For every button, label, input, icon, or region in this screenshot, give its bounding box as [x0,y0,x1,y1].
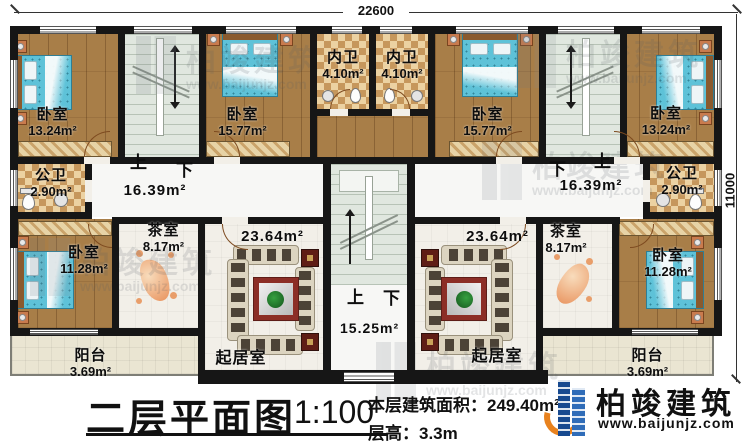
room-area: 11.28m² [624,265,712,280]
watermark-brand: 柏竣建筑 [186,36,322,80]
room-name: 卧室 [195,107,290,124]
bed-headboard [17,252,24,308]
floor-plan-page: 柏竣建筑 www.baijunjz.com 柏竣建筑 www.baijunjz.… [0,0,750,447]
room-area: 16.39m² [556,178,626,195]
room-area: 15.25m² [340,321,398,337]
wall [650,212,714,219]
room-label-inner-bath-left: 内卫 4.10m² [316,50,370,81]
pillow [493,43,511,55]
room-name: 阳台 [48,348,133,365]
room-label-bedroom-top-right: 卧室 13.24m² [622,106,710,137]
window [558,26,614,34]
room-area: 23.64m² [215,229,330,246]
room-area: 4.10m² [374,67,430,82]
window [714,60,722,108]
room-name: 公卫 [16,168,86,185]
plant [456,291,473,308]
door-opening [496,157,522,164]
room-area: 11.28m² [40,262,128,277]
bed [462,33,518,97]
room-label-hall-right: 16.39m² [556,178,626,195]
room-area: 3.69m² [48,365,133,380]
room-label-balcony-left: 阳台 3.69m² [48,348,133,379]
door-opening [222,217,248,224]
room-name: 内卫 [374,50,430,67]
window [632,329,698,335]
room-area: 13.24m² [10,124,95,139]
bed-headboard [463,34,517,40]
door-opening [500,217,526,224]
room-name: 卧室 [10,107,95,124]
door-opening [84,157,110,164]
room-area: 13.24m² [622,123,710,138]
room-area: 23.64m² [440,229,555,246]
room-area: 8.17m² [126,240,201,255]
room-area: 2.90m² [648,183,716,198]
room-label-public-bath-left: 公卫 2.90m² [16,168,86,199]
bed [14,55,72,110]
room-label-living-right: 起居室 [452,348,542,366]
wall [612,224,619,336]
wall [118,26,125,164]
arrow-head [345,204,355,216]
floor-height-value: 3.3m [419,424,458,443]
room-area: 15.77m² [440,124,535,139]
floor-height-label: 层高： [368,424,419,443]
wall [10,26,722,34]
stair-rail [365,176,373,260]
room-label-hall-left: 16.39m² [118,183,192,200]
stair-up-label: 上 [594,147,611,172]
window [134,26,192,34]
window [332,26,362,34]
wall [539,26,546,164]
watermark-url: www.baijunjz.com [80,278,201,294]
watermark-brand: 柏竣建筑 [566,30,702,74]
window [714,248,722,300]
room-label-bedroom-top-left-2: 卧室 15.77m² [195,107,290,138]
door-opening [214,157,240,164]
stair-up-label: 上 [347,283,364,308]
room-label-living-right-area: 23.64m² [440,229,555,246]
room-area: 4.10m² [316,67,370,82]
window [30,329,98,335]
stair-down-label: 下 [549,155,566,180]
sofa [491,259,513,341]
dimension-top-value: 22600 [343,3,409,18]
room-name: 内卫 [316,50,370,67]
stair-down-label: 下 [176,156,193,181]
room-label-bedroom-top-left: 卧室 13.24m² [10,107,95,138]
room-label-public-bath-right: 公卫 2.90m² [648,166,716,197]
window [10,60,18,108]
room-name: 卧室 [624,248,712,265]
pillow [470,43,488,55]
room-label-balcony-right: 阳台 3.69m² [605,348,690,379]
sofa-set [417,245,513,357]
wall [310,26,317,164]
floor-strip-center [317,109,428,164]
wall [407,157,415,370]
brand-url: www.baijunjz.com [598,415,735,431]
window [344,372,394,382]
pillow [681,281,694,300]
room-label-bedroom-bottom-right: 卧室 11.28m² [624,248,712,279]
room-label-bedroom-bottom-left: 卧室 11.28m² [40,245,128,276]
blanket [45,56,71,109]
tea-decor-dot [586,296,592,302]
wall [112,224,119,336]
logo-tower [572,388,585,436]
side-table [301,249,319,267]
pillow [24,85,37,104]
brand-logo-icon [544,378,590,442]
dimension-right-value: 11000 [723,161,738,221]
wall [323,157,331,370]
door-opening [614,157,640,164]
room-name: 卧室 [40,245,128,262]
floor-height-line: 层高：3.3m [368,419,458,444]
plan-scale: 1:100 [294,394,374,431]
room-area: 3.69m² [605,365,690,380]
logo-tower [558,380,570,436]
door-opening [330,109,348,116]
room-name: 起居室 [196,350,286,368]
room-name: 卧室 [622,106,710,123]
room-name: 公卫 [648,166,716,183]
room-label-living-left-area: 23.64m² [215,229,330,246]
wall [199,26,206,164]
window [40,26,96,34]
room-area: 2.90m² [16,185,86,200]
window [226,26,296,34]
wall [310,109,435,116]
window [10,248,18,300]
room-label-inner-bath-right: 内卫 4.10m² [374,50,430,81]
room-area: 15.77m² [195,124,290,139]
window [456,26,528,34]
door-opening [392,109,410,116]
room-name: 起居室 [452,348,542,366]
room-label-stair-hall-center: 15.25m² [340,321,398,337]
side-table [301,333,319,351]
arrow-head [170,102,180,114]
side-table [421,249,439,267]
room-area: 16.39m² [118,183,192,200]
nightstand [447,33,460,46]
window [380,26,412,34]
plant [267,291,284,308]
arrow-head [566,102,576,114]
floor-area-label: 本层建筑面积： [368,396,487,415]
toilet [350,88,361,103]
stair-up-label: 上 [130,148,147,173]
wall [10,212,85,219]
title-underline [86,433,388,436]
room-name: 卧室 [440,107,535,124]
wall [428,26,435,164]
sink [411,90,423,102]
watermark-logo-icon [136,36,176,94]
blanket [463,67,517,96]
door-opening [85,180,92,202]
stair-down-label: 下 [383,284,400,309]
window [642,26,700,34]
room-name: 阳台 [605,348,690,365]
room-name: 茶室 [126,223,201,240]
pillow [24,61,37,80]
room-label-living-left: 起居室 [196,350,286,368]
nightstand [691,311,704,324]
watermark-logo-icon [516,30,556,88]
floor-area-line: 本层建筑面积：249.40m² [368,391,560,416]
room-label-bedroom-top-right-2: 卧室 15.77m² [440,107,535,138]
room-label-tea-left: 茶室 8.17m² [126,223,201,254]
tea-decor-dot [586,258,593,265]
stair-direction-arrow [349,212,351,264]
